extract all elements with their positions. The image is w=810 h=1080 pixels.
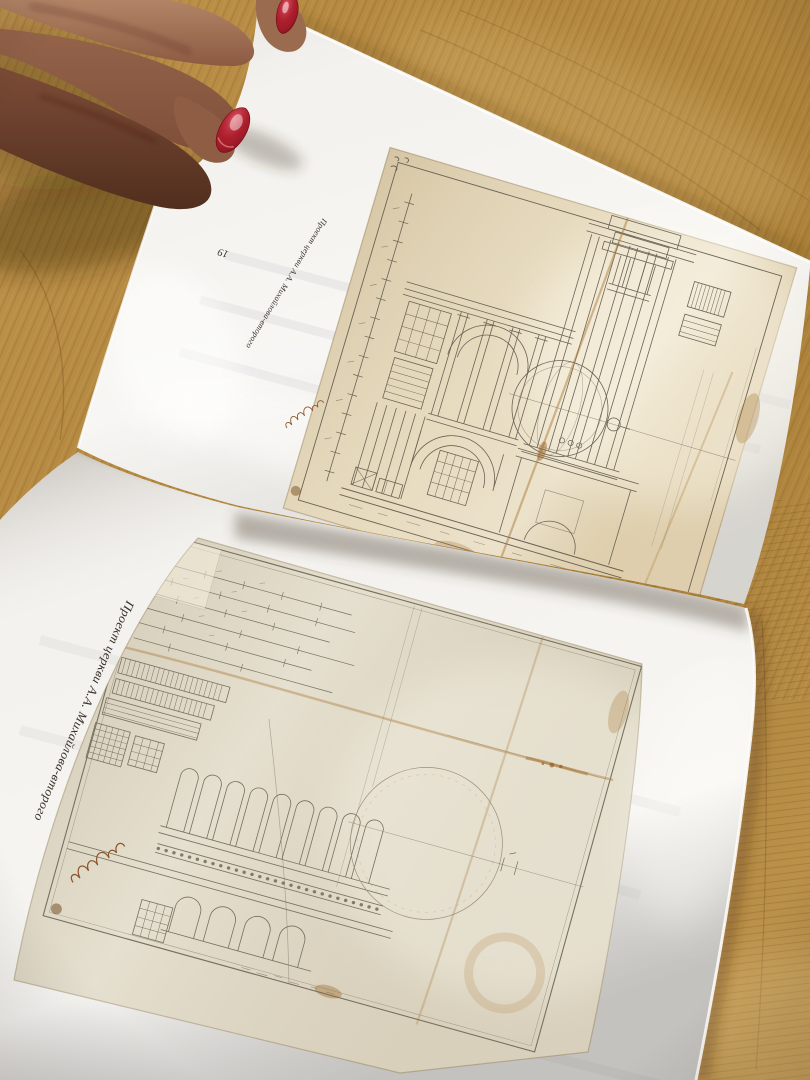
photo-canvas: Проект церкви А.А. Михайлова-второго bbox=[0, 0, 810, 1080]
vignette bbox=[0, 0, 810, 1080]
scene-photo: Проект церкви А.А. Михайлова-второго bbox=[0, 0, 810, 1080]
